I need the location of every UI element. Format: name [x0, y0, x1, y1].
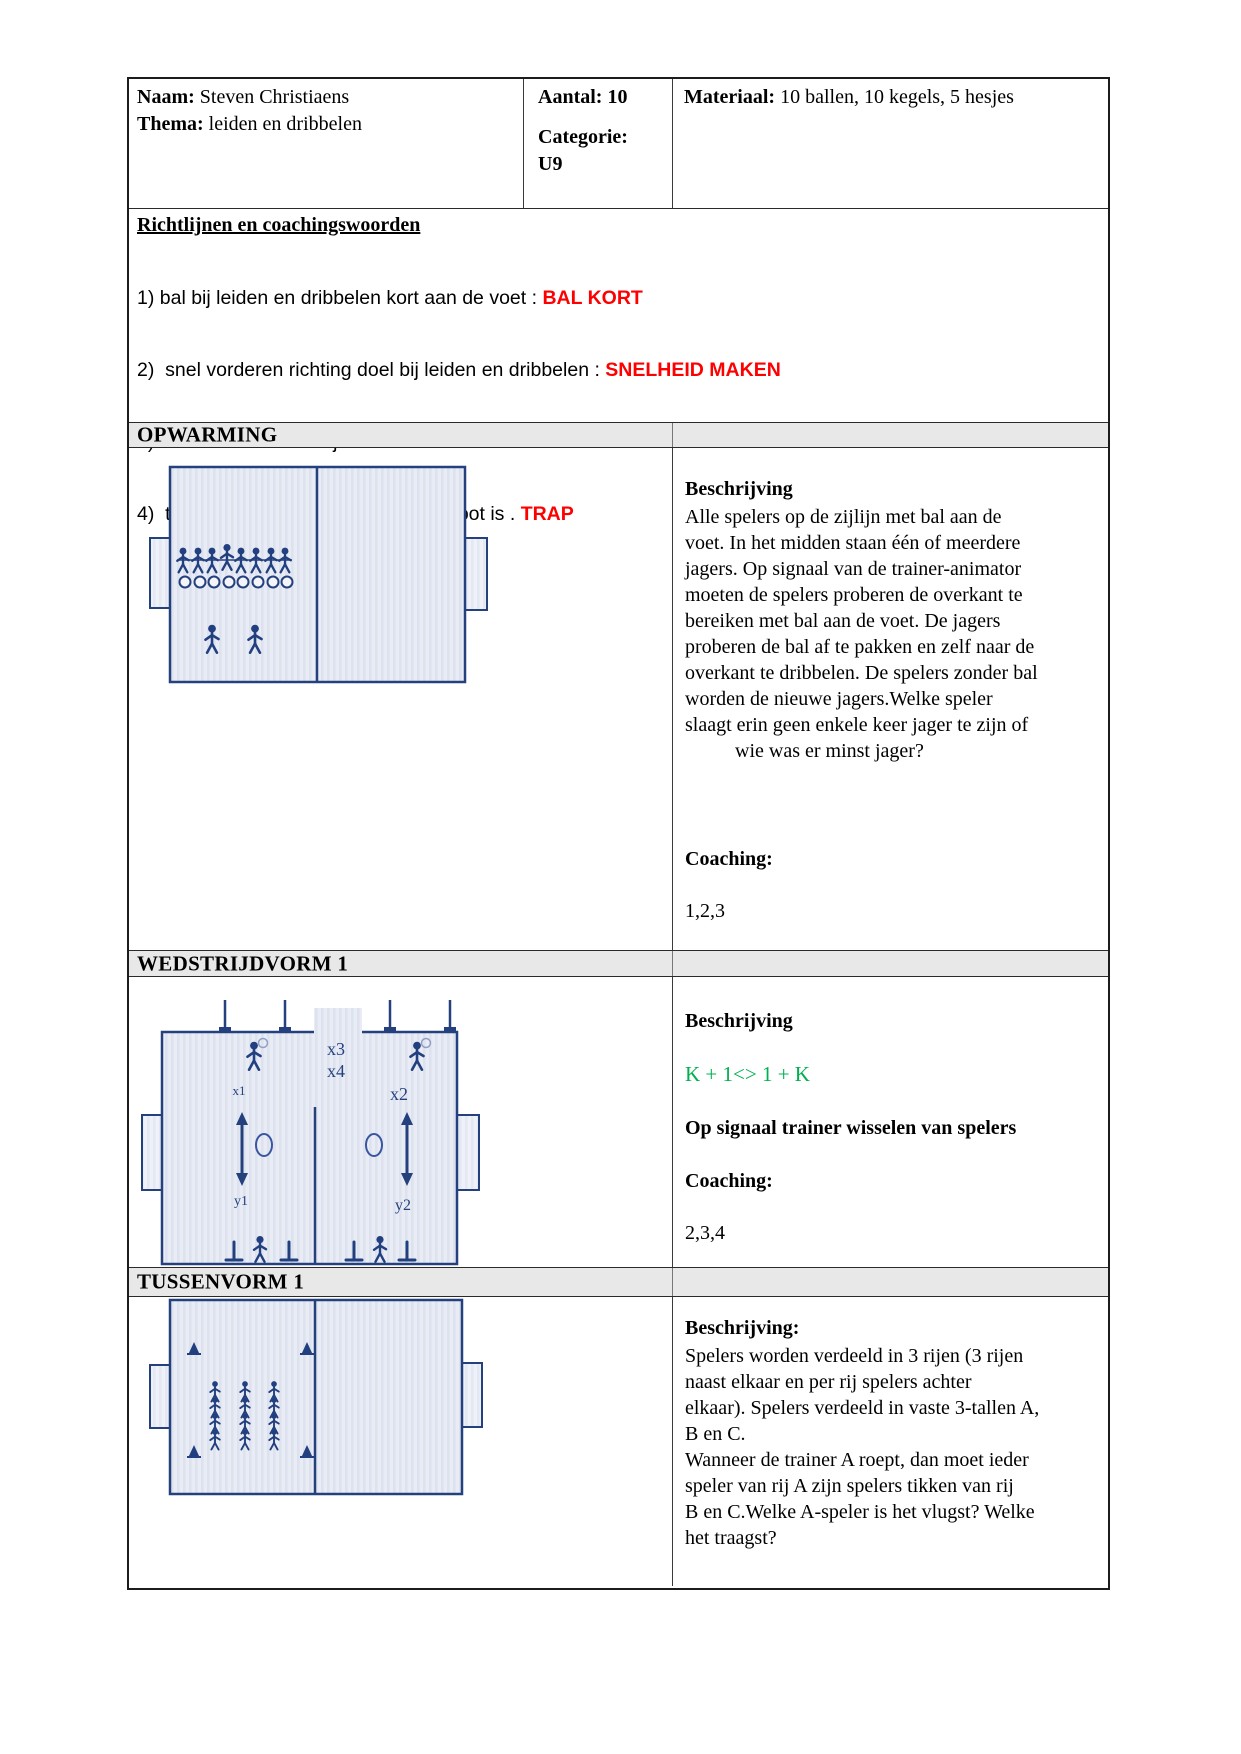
- richtlijnen-item-2-text: 2) snel vorderen richting doel bij leide…: [137, 359, 605, 381]
- goal-right: [460, 1363, 482, 1427]
- tussenvorm-diagram: [129, 1297, 672, 1586]
- opwarming-diagram: [129, 448, 672, 950]
- header-divider-2: [672, 79, 673, 208]
- opwarming-divider: [672, 448, 673, 950]
- naam-thema-cell: Naam: Steven Christiaens Thema: leiden e…: [137, 84, 517, 138]
- label-x2: x2: [390, 1084, 408, 1104]
- tussenvorm-beschrijving-label: Beschrijving:: [685, 1317, 799, 1340]
- wedstrijdvorm-beschrijving-label: Beschrijving: [685, 1010, 793, 1033]
- richtlijnen-item-2-keyword: SNELHEID MAKEN: [605, 359, 781, 381]
- label-y2: y2: [395, 1197, 411, 1214]
- opwarming-bar: OPWARMING: [129, 422, 1108, 448]
- richtlijnen-item-1-keyword: BAL KORT: [542, 287, 642, 309]
- naam-label: Naam:: [137, 86, 195, 108]
- goal-right: [455, 1115, 479, 1190]
- header-divider-1: [523, 79, 524, 208]
- richtlijnen-item-1-text: 1) bal bij leiden en dribbelen kort aan …: [137, 287, 542, 309]
- categorie-value: U9: [538, 151, 562, 178]
- tussenvorm-bar-divider: [672, 1268, 673, 1296]
- opwarming-beschrijving-label: Beschrijving: [685, 478, 793, 501]
- richtlijnen-title: Richtlijnen en coachingswoorden: [137, 212, 420, 239]
- training-plan-table: Naam: Steven Christiaens Thema: leiden e…: [127, 77, 1110, 1590]
- tussenvorm-row: Beschrijving: Spelers worden verdeeld in…: [129, 1297, 1108, 1586]
- thema-value: leiden en dribbelen: [204, 113, 362, 135]
- goal-left: [150, 1365, 172, 1428]
- tussenvorm-bar: TUSSENVORM 1: [129, 1267, 1108, 1297]
- wedstrijdvorm-divider: [672, 977, 673, 1267]
- wedstrijdvorm-row: x3 x4 x1 x2: [129, 977, 1108, 1267]
- tussenvorm-divider: [672, 1297, 673, 1586]
- wedstrijdvorm-formula: K + 1<> 1 + K: [685, 1062, 810, 1087]
- thema-label: Thema:: [137, 113, 204, 135]
- materiaal-value: 10 ballen, 10 kegels, 5 hesjes: [775, 86, 1014, 108]
- aantal-value: Aantal: 10: [538, 84, 627, 111]
- label-x1: x1: [233, 1083, 246, 1098]
- naam-value: Steven Christiaens: [195, 86, 349, 108]
- opwarming-beschrijving-text: Alle spelers op de zijlijn met bal aan d…: [685, 504, 1100, 764]
- opwarming-coaching-label: Coaching:: [685, 848, 773, 871]
- label-x3: x3: [327, 1039, 345, 1059]
- tussenvorm-title: TUSSENVORM 1: [137, 1270, 304, 1295]
- categorie-label: Categorie:: [538, 124, 628, 151]
- opwarming-row: Beschrijving Alle spelers op de zijlijn …: [129, 448, 1108, 950]
- opwarming-bar-divider: [672, 423, 673, 447]
- wedstrijdvorm-bar: WEDSTRIJDVORM 1: [129, 950, 1108, 977]
- opwarming-coaching-value: 1,2,3: [685, 898, 725, 924]
- document-page: Naam: Steven Christiaens Thema: leiden e…: [0, 0, 1241, 1754]
- tussenvorm-beschrijving-text: Spelers worden verdeeld in 3 rijen (3 ri…: [685, 1343, 1100, 1551]
- wedstrijdvorm-title: WEDSTRIJDVORM 1: [137, 951, 348, 976]
- label-x4: x4: [327, 1061, 345, 1081]
- goal-left: [142, 1115, 164, 1190]
- wedstrijdvorm-coaching-value: 2,3,4: [685, 1220, 725, 1246]
- richtlijnen-item-1: 1) bal bij leiden en dribbelen kort aan …: [137, 286, 1077, 310]
- materiaal-label: Materiaal:: [684, 86, 775, 108]
- goal-right: [465, 538, 487, 610]
- richtlijnen-row: Richtlijnen en coachingswoorden 1) bal b…: [129, 208, 1108, 422]
- opwarming-title: OPWARMING: [137, 423, 277, 448]
- wedstrijdvorm-diagram: x3 x4 x1 x2: [129, 977, 672, 1267]
- goal-left: [150, 538, 172, 608]
- richtlijnen-item-2: 2) snel vorderen richting doel bij leide…: [137, 358, 1077, 382]
- wedstrijdvorm-bar-divider: [672, 951, 673, 976]
- header-row: Naam: Steven Christiaens Thema: leiden e…: [129, 79, 1108, 209]
- wedstrijdvorm-note: Op signaal trainer wisselen van spelers: [685, 1117, 1016, 1140]
- wedstrijdvorm-coaching-label: Coaching:: [685, 1170, 773, 1193]
- naam-line: Naam: Steven Christiaens: [137, 84, 517, 111]
- label-y1: y1: [234, 1194, 248, 1209]
- materiaal-cell: Materiaal: 10 ballen, 10 kegels, 5 hesje…: [684, 84, 1099, 111]
- thema-line: Thema: leiden en dribbelen: [137, 111, 517, 138]
